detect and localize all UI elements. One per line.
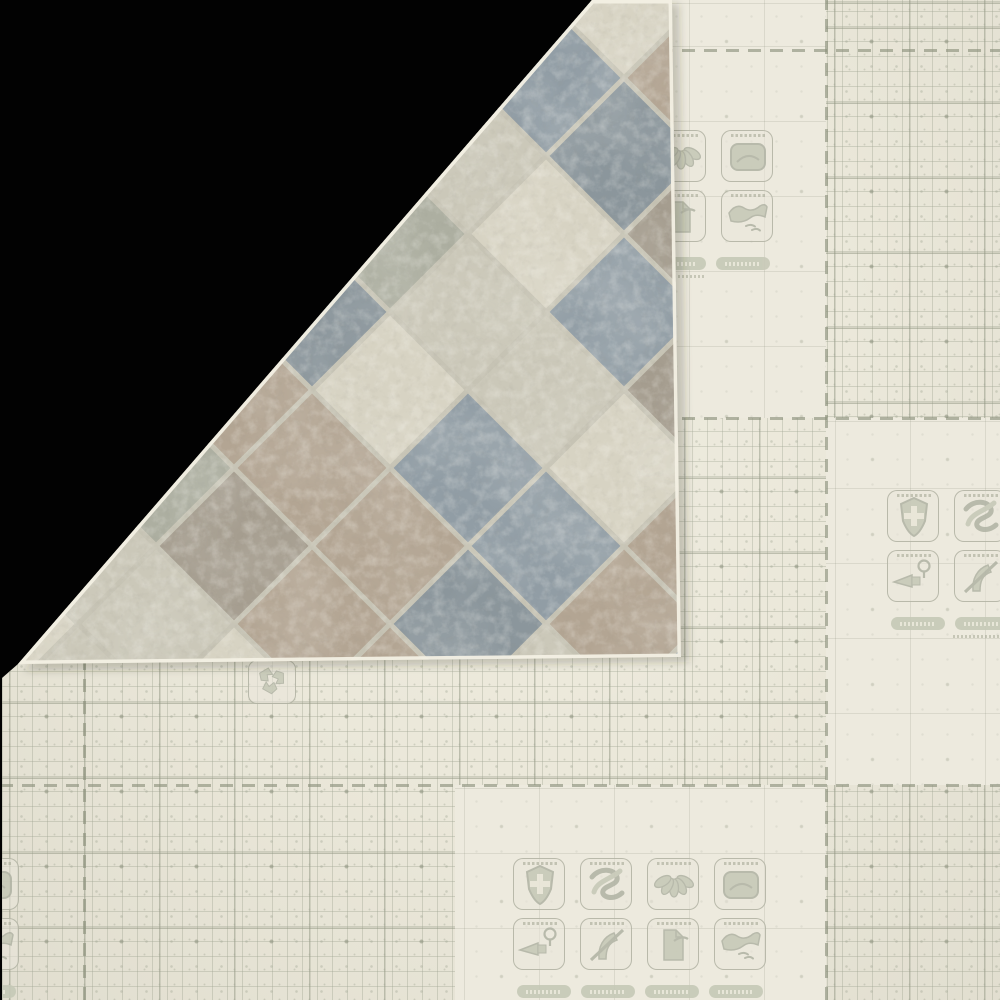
knotted-rope-icon <box>954 490 1000 542</box>
spec-badge-illegible <box>0 985 16 998</box>
leaf-petals-icon <box>647 858 699 910</box>
shield-cross-icon <box>887 490 939 542</box>
cushion-comfort-icon <box>721 130 773 182</box>
tile-pattern <box>0 0 700 680</box>
hand-fabric-icon <box>714 918 766 970</box>
knotted-rope-icon <box>580 858 632 910</box>
panel-divider-dashed-line <box>0 784 1000 787</box>
spec-badge-illegible <box>645 985 699 998</box>
spec-icon-cluster <box>513 858 766 1000</box>
spec-badge-illegible <box>517 985 571 998</box>
adhesive-applicator-icon <box>887 550 939 602</box>
spec-badge-illegible <box>716 257 770 270</box>
cushion-comfort-icon <box>714 858 766 910</box>
fine-print-illegible <box>953 635 1000 638</box>
product-photo <box>0 0 1000 1000</box>
no-stiletto-heel-icon <box>580 918 632 970</box>
no-stiletto-heel-icon <box>954 550 1000 602</box>
panel-divider-dashed-line <box>0 49 1000 52</box>
recycle-icon-box <box>248 660 296 704</box>
spec-badge-illegible <box>581 985 635 998</box>
spec-badge-illegible <box>891 617 945 630</box>
adhesive-applicator-icon <box>513 918 565 970</box>
hand-fabric-icon <box>0 918 19 970</box>
spec-icon-cluster <box>0 858 19 1000</box>
cushion-comfort-icon <box>0 858 19 910</box>
panel-divider-dashed-line <box>83 0 86 1000</box>
panel-divider-dashed-line <box>825 0 828 1000</box>
folded-sheet-icon <box>647 918 699 970</box>
spec-badge-illegible <box>955 617 1000 630</box>
spec-badge-illegible <box>709 985 763 998</box>
shield-cross-icon <box>513 858 565 910</box>
spec-icon-cluster <box>887 490 1000 632</box>
hand-fabric-icon <box>721 190 773 242</box>
